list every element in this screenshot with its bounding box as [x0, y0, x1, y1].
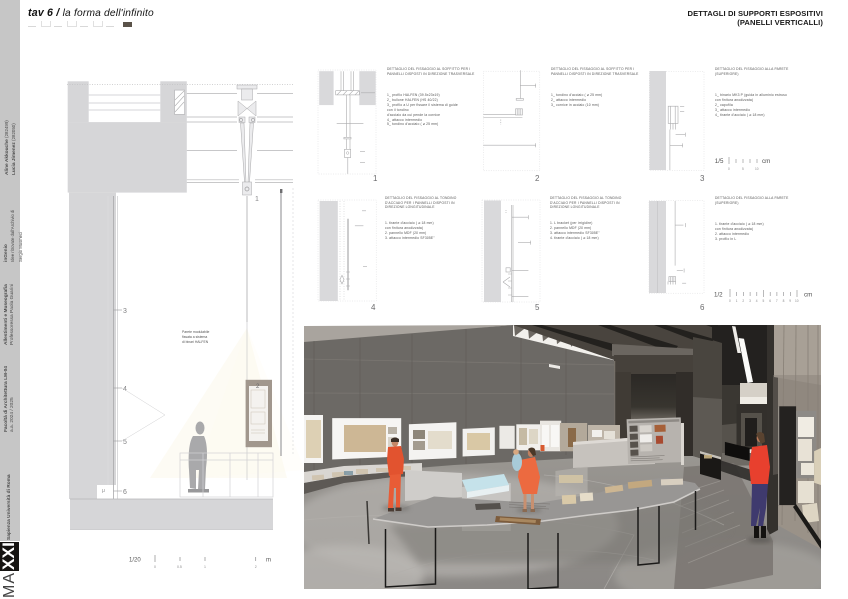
- svg-text:3: 3: [123, 308, 127, 315]
- svg-text:4: 4: [123, 386, 127, 393]
- svg-text:6: 6: [769, 299, 771, 303]
- svg-text:1/20: 1/20: [129, 558, 141, 564]
- svg-text:9: 9: [789, 299, 791, 303]
- svg-text:0: 0: [728, 167, 730, 171]
- svg-text:m: m: [266, 558, 271, 564]
- svg-text:10: 10: [755, 167, 759, 171]
- svg-text:5: 5: [742, 167, 744, 171]
- svg-text:Parete modulabile: Parete modulabile: [182, 330, 209, 334]
- svg-text:cm: cm: [762, 158, 770, 165]
- svg-text:2: 2: [742, 299, 744, 303]
- svg-text:5: 5: [763, 299, 765, 303]
- svg-text:3: 3: [749, 299, 751, 303]
- svg-text:0.5: 0.5: [177, 565, 182, 569]
- svg-text:1/5: 1/5: [715, 158, 724, 165]
- svg-text:2: 2: [255, 565, 257, 569]
- svg-text:6: 6: [123, 489, 127, 496]
- svg-text:10: 10: [795, 299, 799, 303]
- svg-text:0: 0: [154, 565, 156, 569]
- svg-text:di binari HALFEN: di binari HALFEN: [182, 340, 209, 344]
- svg-text:7: 7: [776, 299, 778, 303]
- svg-text:fissata a sistema: fissata a sistema: [182, 335, 207, 339]
- svg-text:cm: cm: [804, 292, 812, 299]
- svg-text:8: 8: [783, 299, 785, 303]
- svg-text:0: 0: [729, 299, 731, 303]
- svg-text:4: 4: [756, 299, 758, 303]
- svg-text:1: 1: [204, 565, 206, 569]
- svg-text:1/2: 1/2: [714, 292, 723, 299]
- svg-text:1: 1: [736, 299, 738, 303]
- svg-text:1: 1: [255, 196, 259, 203]
- svg-text:μ: μ: [102, 488, 105, 494]
